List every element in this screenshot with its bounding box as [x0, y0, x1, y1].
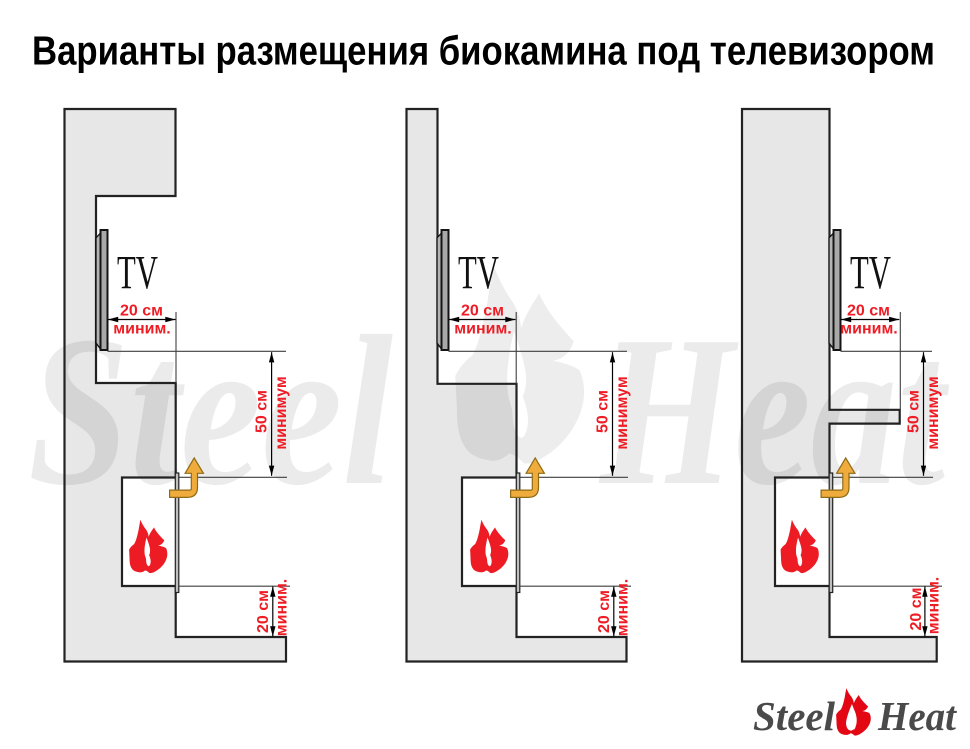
svg-text:TV: TV: [850, 247, 891, 300]
svg-text:минимум: минимум: [614, 376, 631, 449]
svg-text:20 см: 20 см: [908, 588, 925, 631]
svg-text:TV: TV: [458, 247, 499, 300]
svg-text:Steel: Steel: [753, 693, 836, 739]
svg-text:миним.: миним.: [926, 577, 943, 634]
svg-text:20 см: 20 см: [596, 590, 613, 633]
svg-text:20 см: 20 см: [255, 590, 272, 633]
svg-text:миним.: миним.: [840, 321, 897, 338]
svg-text:20 см: 20 см: [847, 303, 890, 320]
svg-text:минимум: минимум: [925, 376, 942, 449]
svg-text:Варианты размещения биокамина: Варианты размещения биокамина под телеви…: [32, 28, 935, 74]
svg-text:минимум: минимум: [273, 376, 290, 449]
svg-text:50 см: 50 см: [595, 390, 612, 433]
svg-text:20 см: 20 см: [120, 303, 163, 320]
svg-text:50 см: 50 см: [906, 390, 923, 433]
svg-text:50 см: 50 см: [254, 390, 271, 433]
svg-text:TV: TV: [117, 247, 158, 300]
svg-text:Heat: Heat: [877, 693, 957, 739]
svg-text:миним.: миним.: [454, 321, 511, 338]
svg-text:миним.: миним.: [113, 321, 170, 338]
svg-text:миним.: миним.: [614, 579, 631, 636]
svg-text:Steel: Steel: [28, 291, 393, 530]
svg-text:миним.: миним.: [273, 579, 290, 636]
svg-text:20 см: 20 см: [461, 303, 504, 320]
